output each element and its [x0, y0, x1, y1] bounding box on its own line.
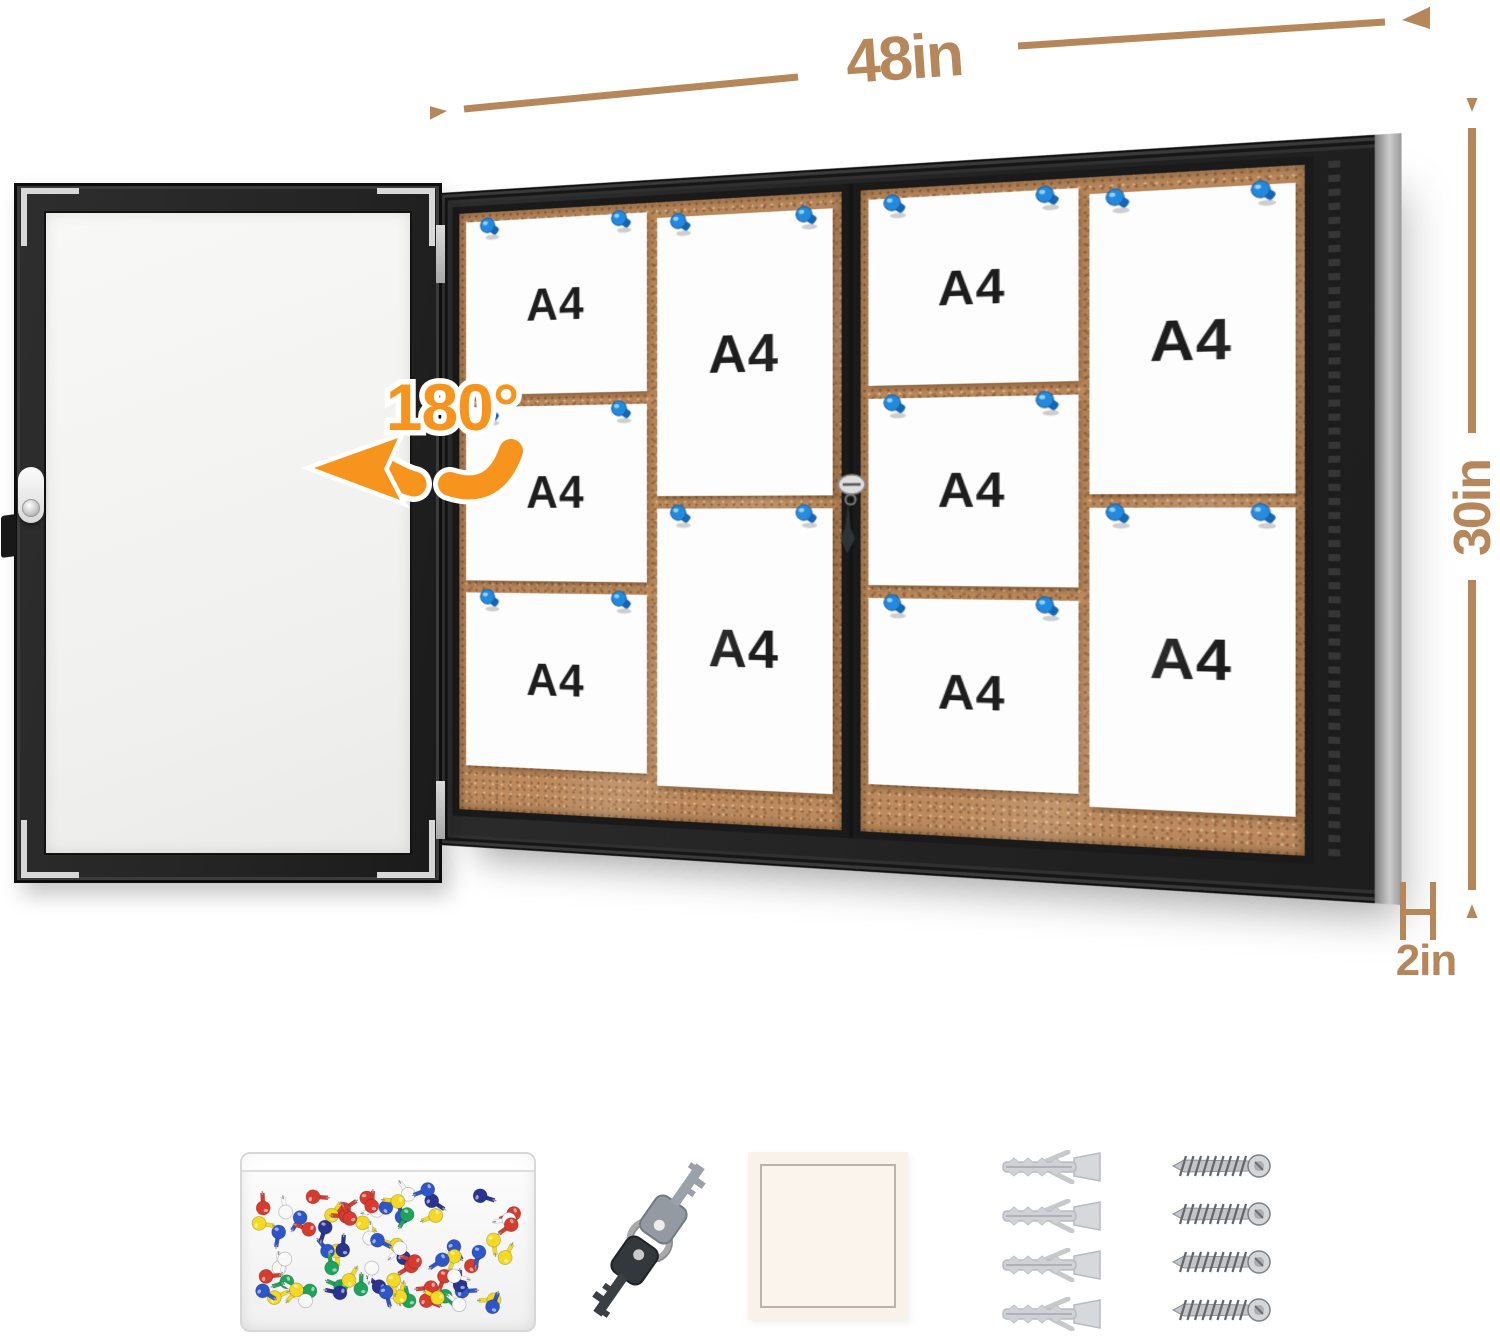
push-pin: [669, 504, 694, 529]
push-pin: [883, 193, 910, 221]
push-pin-icon: [1034, 390, 1063, 417]
corner-bracket-icon: [377, 188, 435, 246]
a4-label: A4: [938, 260, 1006, 318]
width-dimension-label: 48in: [844, 20, 965, 97]
push-pin: [610, 590, 635, 615]
push-pin-icon: [1249, 502, 1280, 530]
push-pin: [883, 393, 910, 420]
push-pin-icon: [1034, 595, 1063, 622]
push-pin-icon: [1034, 184, 1063, 212]
a4-label: A4: [1149, 626, 1232, 694]
push-pin-icon: [794, 205, 820, 232]
keys-icon: [585, 1148, 735, 1338]
loose-push-pin-icon: [303, 1183, 331, 1211]
corner-bracket-icon: [21, 820, 79, 878]
a4-label: A4: [708, 322, 779, 385]
loose-push-pin-icon: [270, 1192, 300, 1222]
push-pin: [669, 212, 694, 238]
push-pin: [883, 593, 910, 620]
a4-paper: A4: [1090, 183, 1296, 494]
screw-icon: [1166, 1200, 1274, 1228]
push-pin-icon: [669, 504, 694, 529]
push-pin: [1034, 595, 1063, 622]
corner-bracket-icon: [21, 188, 79, 246]
push-pin-icon: [1104, 503, 1133, 530]
loose-push-pin-icon: [268, 1247, 299, 1278]
dimension-line: [464, 77, 798, 109]
loose-push-pin-icon: [379, 1186, 408, 1215]
loose-push-pin-icon: [329, 1232, 357, 1260]
a4-label: A4: [526, 278, 584, 331]
a4-paper: A4: [657, 208, 833, 496]
push-pin: [1104, 503, 1133, 530]
dimension-line: [1018, 22, 1385, 46]
push-pin: [479, 588, 503, 613]
a4-paper: A4: [1090, 507, 1296, 817]
screw-icon: [1166, 1248, 1274, 1276]
door-latch-tab: [1, 514, 16, 558]
door-latch-lock: [18, 467, 44, 523]
a4-paper: A4: [868, 188, 1078, 386]
hinge-icon: [436, 225, 445, 283]
a4-label: A4: [938, 665, 1006, 722]
push-pin: [794, 205, 820, 232]
width-dimension-annotation: 48in: [430, 5, 1430, 140]
push-pin-icon: [669, 212, 694, 238]
push-pin-icon: [883, 193, 910, 221]
push-pin: [1249, 502, 1280, 530]
push-pin-icon: [883, 593, 910, 620]
arrowhead-right-icon: [1401, 5, 1430, 35]
depth-dimension-label: 2in: [1378, 936, 1474, 986]
push-pin: [1249, 179, 1280, 208]
wall-anchor-icon: [996, 1199, 1108, 1233]
height-dimension-label: 30in: [1444, 460, 1500, 556]
door-swing-label: 180°: [386, 370, 519, 444]
a4-paper: A4: [657, 508, 833, 795]
push-pin-icon: [610, 590, 635, 615]
arrowhead-left-icon: [430, 96, 448, 130]
a4-label: A4: [708, 618, 779, 681]
push-pin-icon: [1249, 179, 1280, 208]
push-pin-icon: [610, 209, 635, 235]
cabinet-track-strip: [1328, 160, 1340, 861]
a4-label: A4: [526, 655, 584, 708]
push-pin-box: [240, 1152, 536, 1332]
swing-arrowhead-icon: [314, 438, 400, 500]
a4-paper: A4: [466, 592, 647, 773]
loose-push-pin-icon: [320, 1277, 350, 1307]
depth-bracket-icon: [1396, 882, 1442, 942]
mounting-screws: [1166, 1150, 1282, 1334]
door-swing-annotation: 180°: [300, 350, 630, 550]
screw-icon: [1166, 1296, 1274, 1324]
push-pin: [610, 209, 635, 235]
screw-icon: [1166, 1152, 1274, 1180]
height-dimension-annotation: 30in: [1432, 98, 1500, 918]
right-cork-panel: A4 A4 A4 A4 A4: [852, 156, 1314, 864]
push-pin-icon: [479, 216, 503, 242]
cabinet-side-face: [1375, 133, 1402, 905]
push-pin-icon: [479, 588, 503, 613]
door-lock-icon: [832, 471, 872, 568]
push-pin: [1034, 184, 1063, 212]
arrowhead-down-icon: [1457, 904, 1487, 918]
push-pin-icon: [794, 503, 820, 529]
a4-paper: A4: [868, 597, 1078, 793]
push-pin-icon: [883, 393, 910, 420]
push-pin-icon: [1104, 187, 1133, 216]
wall-anchor-icon: [996, 1297, 1108, 1331]
blank-card: [748, 1152, 908, 1320]
push-pin: [1034, 390, 1063, 417]
corner-bracket-icon: [377, 820, 435, 878]
wall-anchor-icon: [996, 1150, 1108, 1184]
push-pin: [794, 503, 820, 529]
a4-paper: A4: [868, 394, 1078, 587]
card-inner-border: [760, 1164, 896, 1308]
keys: [585, 1148, 735, 1336]
wall-anchor-icon: [996, 1248, 1108, 1282]
arrowhead-up-icon: [1457, 98, 1487, 112]
a4-label: A4: [938, 463, 1006, 518]
wall-anchors: [996, 1150, 1122, 1332]
hinge-icon: [436, 781, 445, 839]
push-pin: [479, 216, 503, 242]
a4-label: A4: [1149, 306, 1232, 375]
push-pin: [1104, 187, 1133, 216]
